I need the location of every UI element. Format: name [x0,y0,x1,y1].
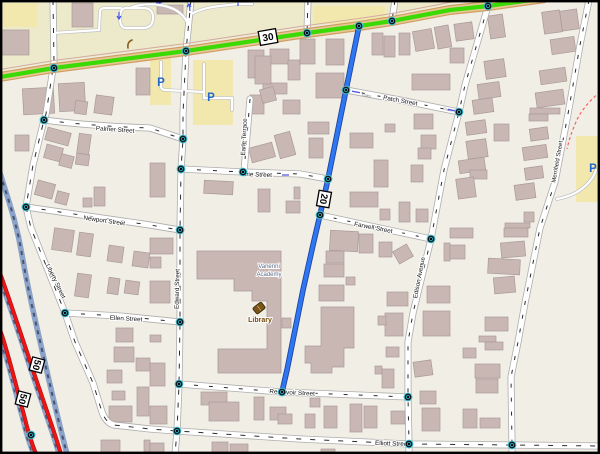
svg-text:Library: Library [248,317,272,324]
svg-text:Vanenni: Vanenni [258,264,280,270]
svg-text:P: P [589,163,597,175]
svg-text:P: P [157,77,165,89]
svg-text:Edward Street: Edward Street [174,269,182,309]
svg-text:Academy: Academy [256,272,281,278]
svg-text:Elliott Street: Elliott Street [375,440,409,448]
svg-text:P: P [207,92,215,104]
svg-text:20: 20 [317,193,330,205]
